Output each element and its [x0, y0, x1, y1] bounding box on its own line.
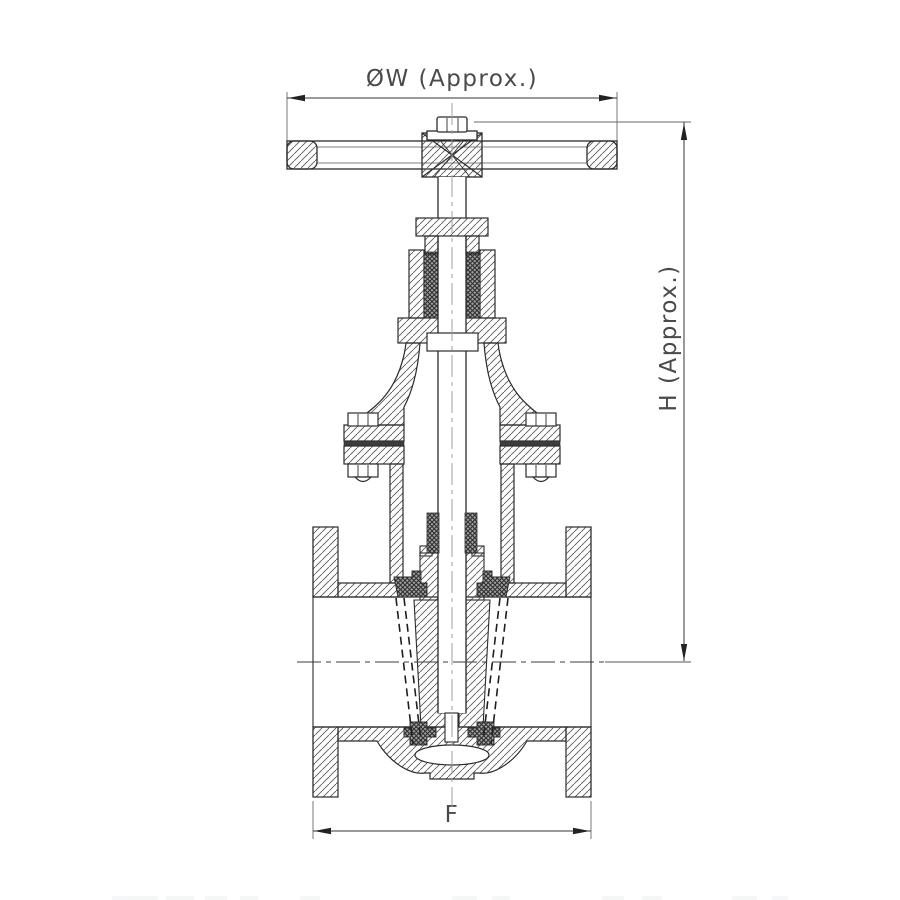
stem-packing [466, 252, 480, 318]
bonnet-flange [500, 425, 560, 441]
handwheel-rim-section [587, 141, 617, 169]
pipe-flange [313, 527, 338, 597]
gate-valve-drawing-canvas: ØW (Approx.) H (Approx.) F [0, 0, 900, 900]
handwheel-rim-section [287, 141, 317, 169]
body-flange-ring [500, 446, 560, 464]
bonnet-gasket [344, 441, 404, 446]
pipe-flange [566, 527, 591, 597]
body-flange-ring [344, 446, 404, 464]
stem-thread-collar [465, 513, 477, 553]
bolt-nut [526, 464, 556, 477]
width-dimension-label: ØW (Approx.) [366, 66, 538, 92]
height-dimension-label: H (Approx.) [656, 264, 682, 411]
bonnet-flange [344, 425, 404, 441]
bolt-head [348, 413, 378, 426]
gate-valve-cross-section: ØW (Approx.) H (Approx.) F [0, 0, 900, 900]
bolt-nut [348, 464, 378, 477]
stem-thread-collar [427, 513, 439, 553]
bolt-head [526, 413, 556, 426]
bonnet-gasket [500, 441, 560, 446]
stem-packing [424, 252, 438, 318]
pipe-flange [313, 727, 338, 797]
pipe-flange [566, 727, 591, 797]
